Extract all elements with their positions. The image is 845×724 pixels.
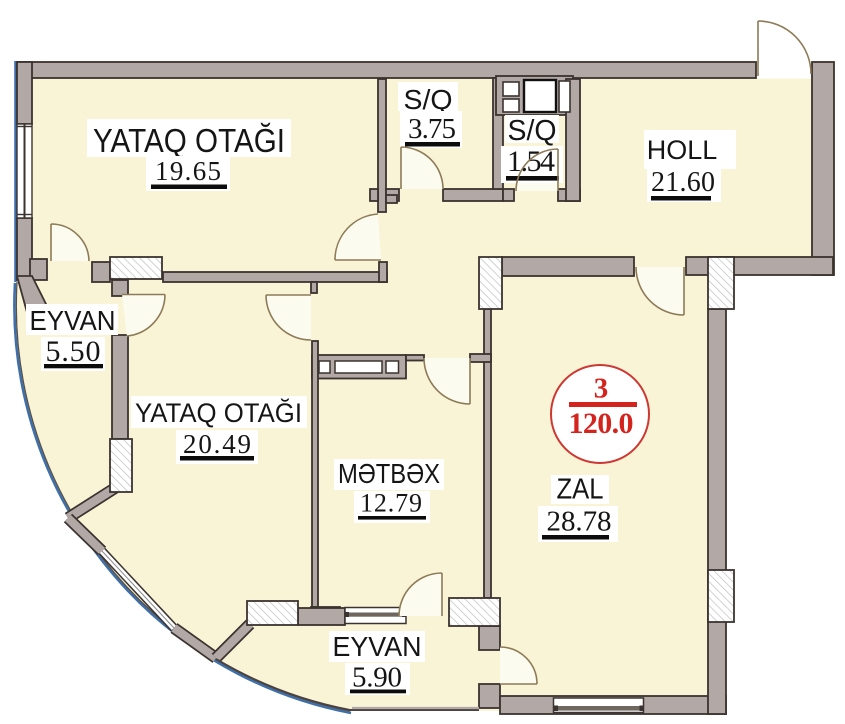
svg-text:YATAQ OTAĞI: YATAQ OTAĞI — [93, 122, 285, 159]
svg-text:28.78: 28.78 — [547, 506, 612, 538]
svg-text:MƏTBƏX: MƏTBƏX — [338, 458, 440, 489]
svg-text:20.49: 20.49 — [183, 429, 251, 459]
svg-text:19.65: 19.65 — [155, 156, 221, 186]
svg-text:EYVAN: EYVAN — [333, 631, 422, 662]
svg-text:5.90: 5.90 — [352, 662, 402, 694]
svg-text:ZAL: ZAL — [557, 474, 604, 506]
svg-text:12.79: 12.79 — [360, 489, 422, 518]
svg-text:S/Q: S/Q — [404, 84, 453, 115]
svg-text:YATAQ OTAĞI: YATAQ OTAĞI — [135, 397, 302, 428]
svg-text:3: 3 — [594, 373, 609, 405]
svg-text:HOLL: HOLL — [647, 135, 718, 165]
svg-text:EYVAN: EYVAN — [30, 305, 116, 336]
svg-text:S/Q: S/Q — [508, 115, 557, 147]
svg-text:120.0: 120.0 — [569, 407, 634, 440]
svg-text:5.50: 5.50 — [46, 335, 101, 368]
svg-text:21.60: 21.60 — [651, 167, 715, 198]
svg-text:3.75: 3.75 — [408, 113, 456, 145]
